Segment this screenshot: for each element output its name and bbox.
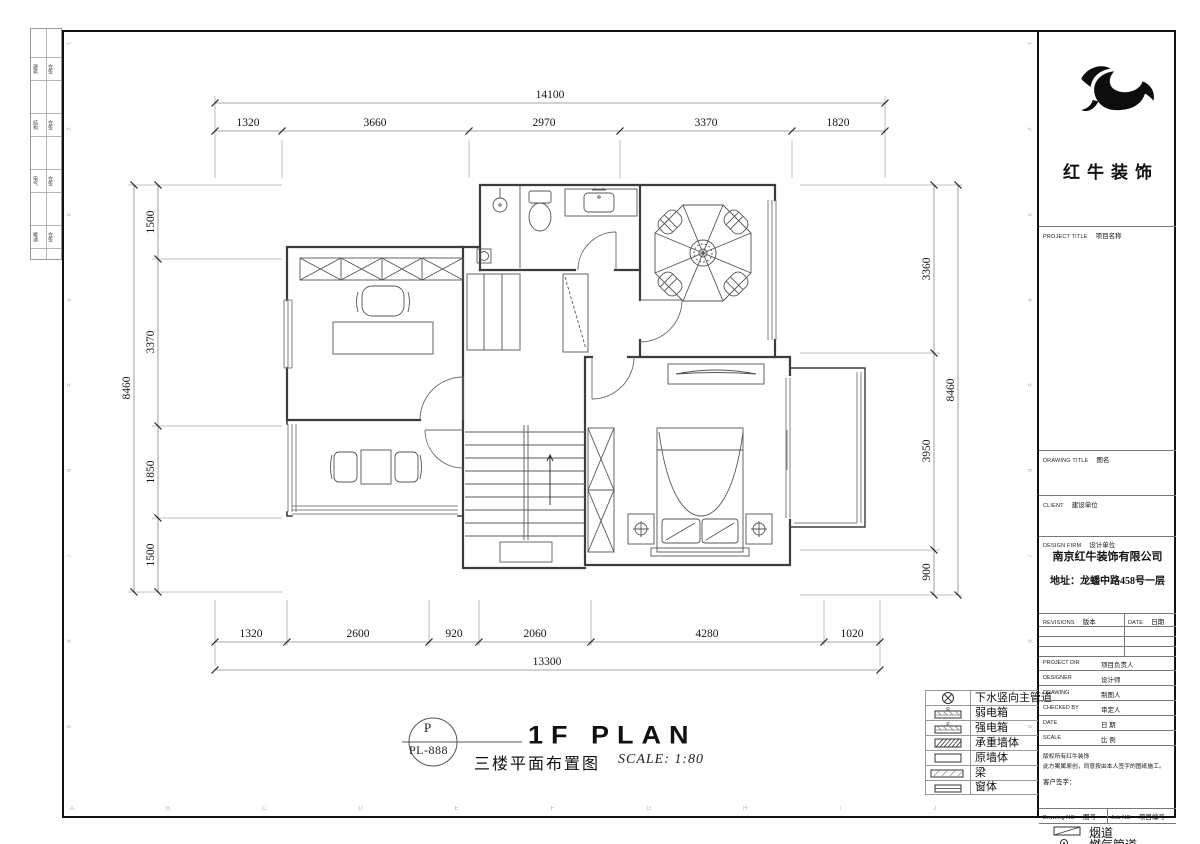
label-cn: 比 例 [1101,734,1116,744]
dim-top-total: 14100 [536,89,565,101]
gas-pipe-icon [1059,838,1071,844]
label-en: DESIGNER [1043,675,1072,681]
dim-top-seg: 2970 [533,117,556,129]
divider [1039,495,1176,496]
dim-left-seg: 1850 [145,460,157,483]
project-dir-row: PROJECT DIR 项目负责人 [1039,656,1176,671]
drawing-no-header: Drawing NO 图号 [1043,811,1096,821]
copyright-line2: 此方案属原创，同意按由本人签字的图纸施工。 [1043,761,1165,770]
strong-current-box-icon: P [926,721,971,735]
dim-bottom-total: 13300 [533,656,562,668]
furniture [300,185,772,556]
legend-label: 燃气管道 [1089,836,1137,844]
project-title-header: PROJECT TITLE 项目名称 [1043,230,1122,240]
drawing-sheet: 建筑 会签 结构 会签 电气 会签 暖通 会签 ABCDEFGHIJ 12345… [0,0,1200,844]
legend-row: 下水竖向主管道 [926,690,1038,705]
dim-bottom-seg: 4280 [696,628,719,640]
label-cn: 制图人 [1101,689,1121,699]
dim-top-seg: 1320 [237,117,260,129]
bed [651,428,749,556]
hall-cabinet [467,274,588,352]
weak-current-box-icon: R [926,706,971,720]
desk-chair [357,286,410,316]
staircase [465,425,585,562]
client-header: CLIENT 建设单位 [1043,499,1098,509]
brand-name: 红牛装饰 [1039,158,1176,183]
legend: 下水竖向主管道 R 弱电箱 P 强电箱 承重墙体 原墙体 [925,690,1038,795]
bearing-wall-icon [926,736,971,750]
label-cn: 建设单位 [1072,499,1098,509]
label-cn: 项目负责人 [1101,659,1134,669]
job-no-header: Job NO 项目编号 [1111,811,1165,821]
label-en: Job NO [1111,815,1131,821]
dim-top-seg: 3660 [364,117,387,129]
drawing-title-header: DRAWING TITLE 图名 [1043,454,1109,464]
plan-title-cn: 三楼平面布置图 [474,750,600,774]
extension-lines [128,96,962,666]
legend-row: P 强电箱 [926,720,1038,735]
dim-bottom-seg: 920 [445,628,463,640]
dim-right-total: 8460 [945,378,957,401]
label-en: DRAWING TITLE [1043,458,1088,464]
designer-row: DESIGNER 设计师 [1039,671,1176,686]
tv-cabinet [668,364,764,384]
dim-bottom-seg: 2600 [347,628,370,640]
label-en: Drawing NO [1043,815,1075,821]
firm-address: 地址：龙蟠中路458号一层 [1039,572,1176,587]
dim-top-seg: 3370 [695,117,718,129]
label-en: CLIENT [1043,503,1064,509]
plan-scale-note: SCALE: 1:80 [618,752,704,768]
dimension-labels: 14100 1320 3660 2970 3370 1820 1320 2600… [121,89,957,668]
brand-logo-icon [1057,52,1157,148]
label-cn: 日 期 [1101,719,1116,729]
walls [287,185,865,568]
desk [333,322,433,354]
label-cn: 版本 [1083,616,1096,626]
legend-row: 梁 [926,765,1038,780]
dim-top-seg: 1820 [827,117,850,129]
legend-label: 梁 [971,767,986,780]
label-cn: 图名 [1096,454,1109,464]
label-cn: 图号 [1083,811,1096,821]
label-en: DRAWING [1043,690,1069,696]
dim-left-seg: 1500 [145,210,157,233]
legend-label: 强电箱 [971,722,1008,735]
dim-left-seg: 3370 [145,330,157,353]
date-row: DATE 日 期 [1039,716,1176,731]
legend-label: 原墙体 [971,752,1008,765]
divider [1039,226,1176,227]
revisions-grid: REVISIONS 版本 DATE 日期 [1039,613,1176,656]
dim-bottom-seg: 1320 [240,628,263,640]
original-wall-icon [926,751,971,765]
label-cn: 设计师 [1101,674,1121,684]
stamp-letter: P [424,720,431,736]
legend-row: 窗体 [926,780,1038,795]
dim-right-seg: 3950 [921,439,933,462]
label-en: DATE [1043,720,1057,726]
dim-right-seg: 3360 [921,257,933,280]
window-icon [926,781,971,795]
title-block: 红牛装饰 PROJECT TITLE 项目名称 DRAWING TITLE 图名… [1039,30,1176,818]
legend-label: 承重墙体 [971,737,1019,750]
svg-text:R: R [946,707,950,713]
label-en: CHECKED BY [1043,705,1079,711]
firm-name: 南京红牛装饰有限公司 [1039,548,1176,564]
dim-right-seg: 900 [921,563,933,581]
study-wardrobe [300,258,463,280]
client-signature-label: 客户签字： [1043,776,1076,786]
stamp-code: PL-888 [409,743,448,758]
scale-row: SCALE 比 例 [1039,731,1176,746]
flue-icon [1053,826,1083,836]
dim-left-seg: 1500 [145,543,157,566]
label-cn: 日期 [1151,616,1164,626]
doors [420,232,682,468]
plan-title-en: 1F PLAN [528,721,697,750]
legend-row: 原墙体 [926,750,1038,765]
label-cn: 项目名称 [1096,230,1122,240]
windows [284,200,861,523]
legend-label: 弱电箱 [971,707,1008,720]
label-cn: 审定人 [1101,704,1121,714]
bathroom-fixtures [493,185,637,268]
label-en: PROJECT TITLE [1043,234,1088,240]
label-en: PROJECT DIR [1043,660,1080,666]
label-en: SCALE [1043,735,1061,741]
legend-label: 窗体 [971,781,997,794]
date-col-header: DATE 日期 [1128,616,1164,626]
label-cn: 项目编号 [1139,811,1165,821]
drawing-by-row: DRAWING 制图人 [1039,686,1176,701]
divider [1107,808,1108,823]
drain-pipe-icon [926,691,971,705]
dim-bottom-seg: 1020 [841,628,864,640]
legend-row: 承重墙体 [926,735,1038,750]
dimension-chains [134,103,958,670]
bedroom-wardrobe [588,428,614,552]
dim-bottom-seg: 2060 [524,628,547,640]
balcony-seating [331,450,422,484]
revisions-header: REVISIONS 版本 [1043,616,1096,626]
divider [1039,536,1176,537]
beam-icon [926,766,971,780]
checked-by-row: CHECKED BY 审定人 [1039,701,1176,716]
dim-left-total: 8460 [121,376,133,399]
copyright-line1: 版权所有红牛装饰 [1043,751,1089,760]
divider [1039,450,1176,451]
legend-row: R 弱电箱 [926,705,1038,720]
